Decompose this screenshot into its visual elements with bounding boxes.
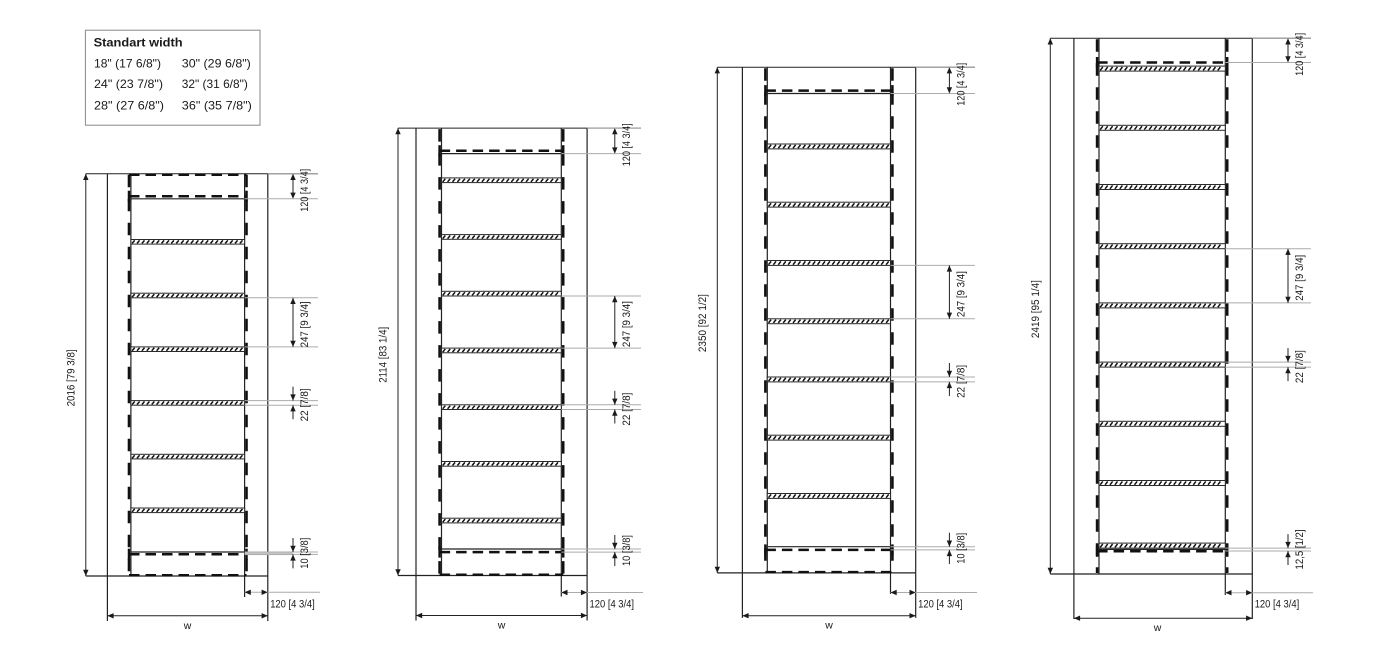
svg-text:2114 [83 1/4]: 2114 [83 1/4] (378, 327, 390, 383)
svg-text:28" (27 6/8"): 28" (27 6/8") (94, 99, 164, 113)
svg-text:10 [3/8]: 10 [3/8] (299, 538, 311, 569)
svg-text:22 [7/8]: 22 [7/8] (1294, 350, 1306, 383)
svg-text:24" (23 7/8"): 24" (23 7/8") (94, 77, 163, 91)
svg-text:30" (29 6/8"): 30" (29 6/8") (182, 57, 251, 71)
svg-text:120 [4 3/4]: 120 [4 3/4] (956, 63, 968, 106)
svg-text:w: w (183, 620, 192, 632)
svg-text:Standart width: Standart width (94, 36, 183, 50)
svg-text:2350 [92 1/2]: 2350 [92 1/2] (697, 294, 709, 352)
svg-text:10 [3/8]: 10 [3/8] (956, 533, 968, 564)
svg-text:247 [9 3/4]: 247 [9 3/4] (621, 301, 633, 347)
svg-text:22 [7/8]: 22 [7/8] (299, 388, 311, 421)
svg-text:22 [7/8]: 22 [7/8] (621, 393, 633, 426)
svg-text:2016 [79 3/8]: 2016 [79 3/8] (66, 349, 78, 406)
svg-text:247 [9 3/4]: 247 [9 3/4] (956, 271, 968, 317)
svg-text:2419 [95 1/4]: 2419 [95 1/4] (1030, 280, 1042, 338)
svg-text:247 [9 3/4]: 247 [9 3/4] (299, 301, 311, 347)
svg-text:w: w (824, 620, 833, 632)
svg-text:120 [4 3/4]: 120 [4 3/4] (299, 169, 311, 212)
svg-text:32" (31 6/8"): 32" (31 6/8") (182, 77, 248, 91)
svg-text:18" (17 6/8"): 18" (17 6/8") (94, 57, 161, 71)
svg-text:247 [9 3/4]: 247 [9 3/4] (1294, 255, 1306, 301)
svg-text:12,5 [1/2]: 12,5 [1/2] (1294, 530, 1306, 570)
svg-text:120 [4 3/4]: 120 [4 3/4] (1294, 33, 1306, 76)
svg-text:22 [7/8]: 22 [7/8] (956, 365, 968, 398)
svg-text:120 [4 3/4]: 120 [4 3/4] (621, 123, 633, 166)
svg-text:36" (35 7/8"): 36" (35 7/8") (182, 99, 252, 113)
svg-text:w: w (1153, 622, 1162, 634)
svg-text:120 [4 3/4]: 120 [4 3/4] (270, 598, 315, 610)
svg-text:120 [4 3/4]: 120 [4 3/4] (918, 599, 963, 611)
svg-text:10 [3/8]: 10 [3/8] (621, 535, 633, 566)
svg-text:120 [4 3/4]: 120 [4 3/4] (590, 599, 635, 611)
svg-text:120 [4 3/4]: 120 [4 3/4] (1255, 599, 1300, 611)
svg-text:w: w (497, 620, 506, 632)
